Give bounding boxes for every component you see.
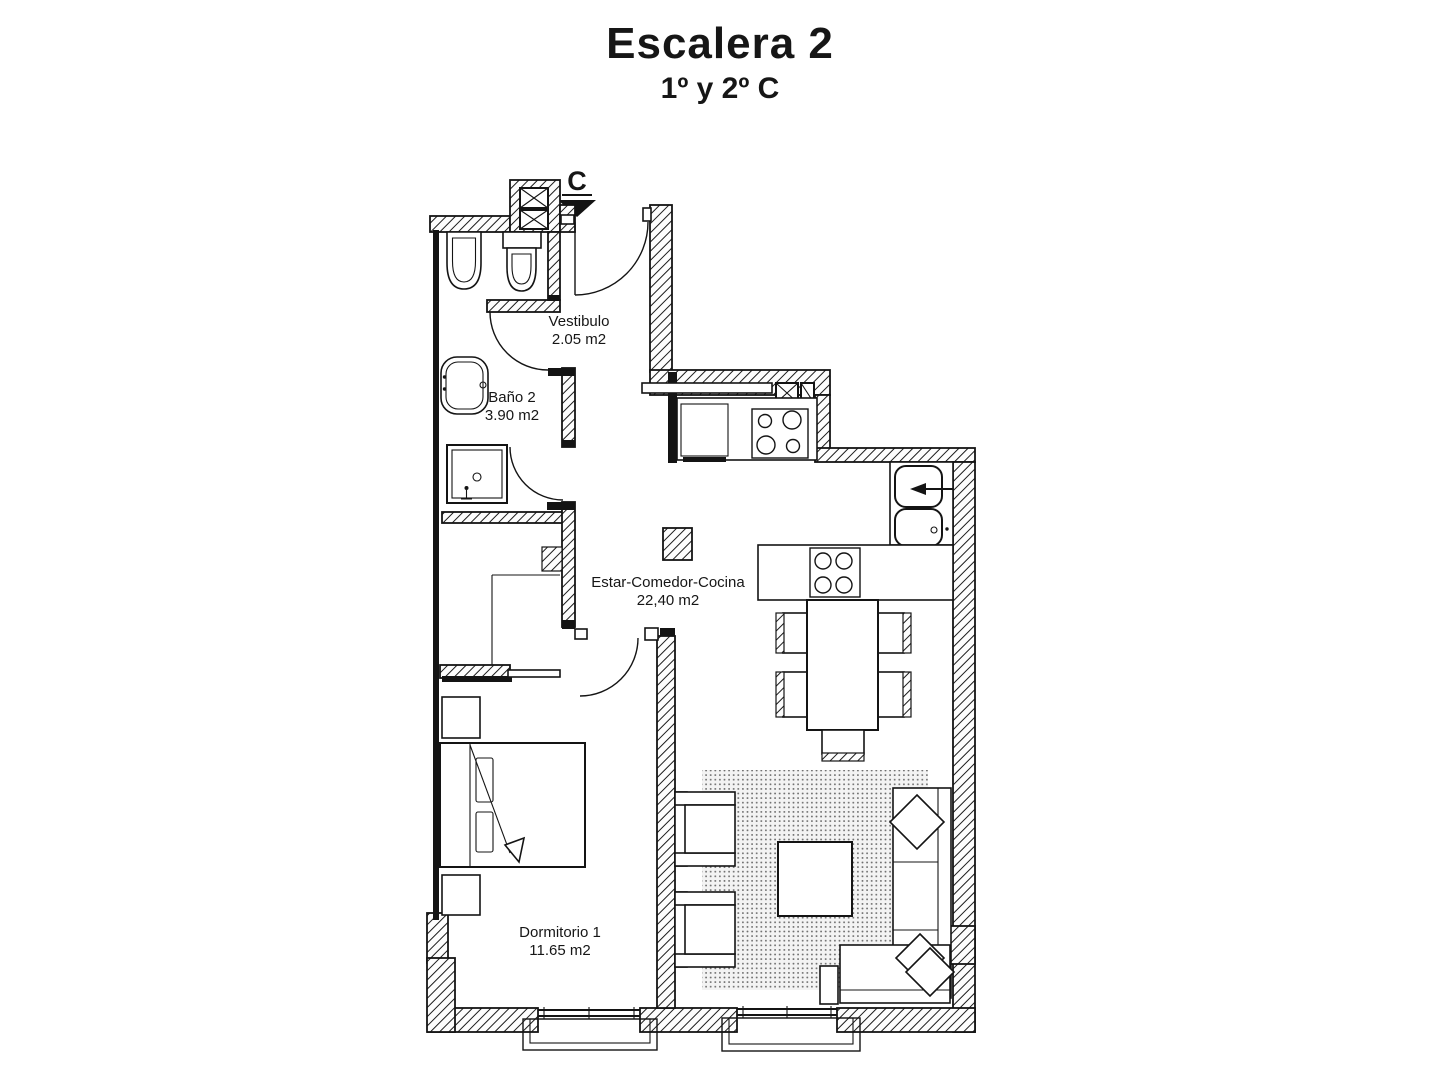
wall-cap xyxy=(562,440,575,447)
entrance-marker-letter: C xyxy=(567,166,587,196)
bedroom-door xyxy=(575,628,658,696)
peninsula-counter xyxy=(758,545,953,600)
dining-chair xyxy=(822,730,864,761)
page-title: Escalera 2 xyxy=(606,19,834,68)
armchair xyxy=(675,892,735,967)
wall-cap xyxy=(660,628,675,636)
door-jamb xyxy=(643,208,651,221)
page-subtitle: 1º y 2º C xyxy=(661,72,780,105)
wall-top-left xyxy=(430,216,510,232)
washbasin xyxy=(441,357,488,414)
wall-corner-left-upper xyxy=(427,913,448,963)
nightstand xyxy=(442,697,480,738)
shower-door-arc xyxy=(510,447,563,500)
room-name: Dormitorio 1 xyxy=(519,924,601,941)
dining-chair xyxy=(878,672,911,717)
sink-counter xyxy=(890,462,953,545)
window xyxy=(538,1007,640,1019)
door-swing-arc xyxy=(580,638,638,696)
wall-bath-upper-right xyxy=(548,232,560,300)
room-label-dormitorio: Dormitorio 1 11.65 m2 xyxy=(519,924,601,959)
closet-front-rail xyxy=(442,676,512,682)
door-jamb xyxy=(575,629,587,639)
wall-closet-right xyxy=(562,502,575,627)
wall-corner-left-lower xyxy=(427,958,455,1032)
window xyxy=(737,1006,837,1018)
room-area: 22,40 m2 xyxy=(637,592,700,609)
wall-bath-stub xyxy=(487,300,560,312)
wall-bath-right xyxy=(562,368,575,447)
side-table xyxy=(820,966,838,1004)
built-in-wardrobe xyxy=(492,575,560,677)
double-bed xyxy=(440,743,585,867)
wall-bottom-right xyxy=(837,1008,975,1032)
wall-cap xyxy=(562,620,575,629)
bidet xyxy=(447,232,481,289)
room-area: 3.90 m2 xyxy=(485,407,539,424)
coffee-table xyxy=(778,842,852,916)
door-jamb xyxy=(561,215,574,224)
door-jamb xyxy=(645,628,658,640)
entry-door xyxy=(561,208,651,295)
wall-cap xyxy=(548,295,560,301)
closet-duct xyxy=(542,547,562,571)
room-label-bano: Baño 2 3.90 m2 xyxy=(485,389,539,424)
room-name: Baño 2 xyxy=(488,389,536,406)
wall-right-jog xyxy=(948,926,975,964)
toilet xyxy=(503,232,541,291)
floor-plan-drawing: Escalera 2 1º y 2º C C xyxy=(0,0,1440,1080)
kitchen-counter xyxy=(677,398,817,460)
wall-left-thin xyxy=(433,230,439,920)
wall-living-bedroom-divider xyxy=(657,636,675,1008)
shower-tray xyxy=(447,445,507,503)
wardrobe-sliding-panel xyxy=(508,670,560,677)
dining-chair xyxy=(776,672,809,717)
bathroom-fixtures xyxy=(441,232,560,677)
room-label-vestibulo: Vestibulo 2.05 m2 xyxy=(549,313,610,348)
wall-bath-closet xyxy=(442,512,563,523)
bedroom-furniture xyxy=(440,697,585,915)
dining-chair xyxy=(878,613,911,653)
dining-chair xyxy=(776,613,809,653)
wall-cap xyxy=(547,502,575,510)
floor-plan-page: Escalera 2 1º y 2º C C xyxy=(0,0,1440,1080)
room-area: 11.65 m2 xyxy=(529,942,590,959)
room-label-estar-comedor-cocina: Estar-Comedor-Cocina 22,40 m2 xyxy=(591,574,745,609)
dining-table xyxy=(807,600,878,730)
bathroom-door-arc xyxy=(490,312,548,370)
structural-pillar xyxy=(663,528,692,560)
door-swing-arc xyxy=(575,222,648,295)
room-name: Estar-Comedor-Cocina xyxy=(591,574,745,591)
nightstand xyxy=(442,875,480,915)
window-sill xyxy=(523,1019,657,1050)
room-name: Vestibulo xyxy=(549,313,610,330)
armchair xyxy=(675,792,735,866)
wall-cap xyxy=(548,368,575,376)
wall-top-right xyxy=(815,448,975,462)
room-area: 2.05 m2 xyxy=(552,331,606,348)
kitchen-fixtures xyxy=(642,383,953,600)
high-cabinet xyxy=(642,383,772,393)
living-furniture xyxy=(675,770,954,1004)
dining-set xyxy=(776,600,911,761)
wall-vestibule-right xyxy=(650,205,672,372)
